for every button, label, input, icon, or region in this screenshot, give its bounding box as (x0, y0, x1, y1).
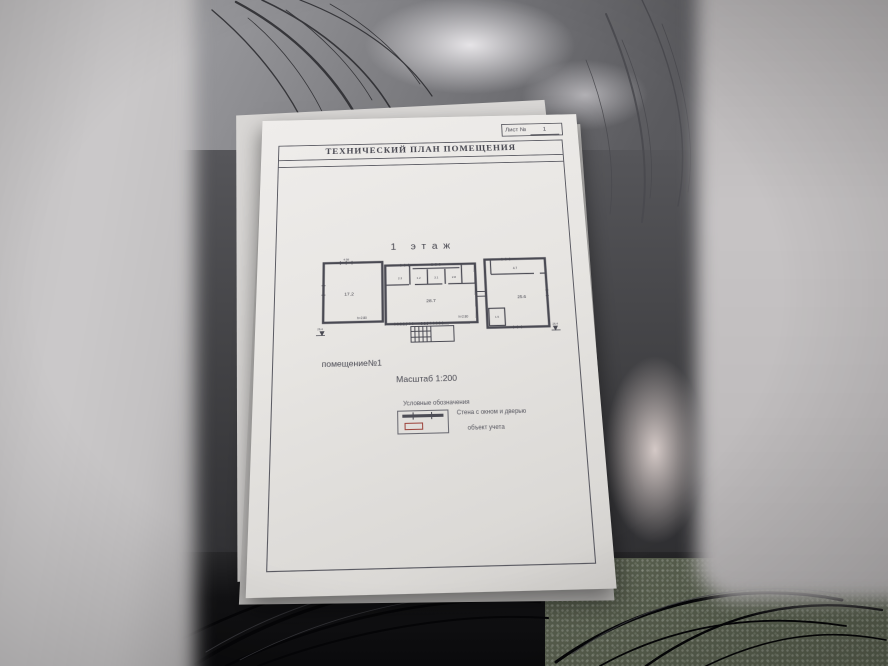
legend-item-wall-label: Стена с окном и дверью (457, 409, 527, 417)
small-room-area: 1.2 (417, 276, 422, 280)
wall-with-window-door-symbol (402, 414, 443, 418)
small-room-area: 2.8 (452, 275, 457, 279)
elevation-mark-right: 26.4 (551, 321, 561, 330)
floor-plan-drawing: 17.2 h=2.80 4.98 (316, 252, 562, 353)
left-room-height: h=2.80 (357, 316, 367, 320)
legend-header: Условные обозначения (403, 397, 571, 407)
elevation-right-value: 26.4 (552, 321, 558, 325)
porch-walls (411, 326, 454, 343)
foreground-blur-right (697, 0, 888, 600)
right-top-room-area: 4.7 (513, 266, 518, 270)
premises-label: помещение№1 (322, 358, 382, 369)
hall-area: 28.7 (426, 298, 436, 304)
sheet-number-value: 1 (530, 124, 560, 135)
legend: Условные обозначения Стена с окном и две… (397, 397, 573, 434)
left-room-area: 17.2 (344, 291, 354, 297)
document-paper: Лист № 1 ТЕХНИЧЕСКИЙ ПЛАН ПОМЕЩЕНИЯ 1 эт… (246, 114, 617, 598)
small-room-area: 3.1 (434, 275, 439, 279)
right-annex-area: 1.5 (495, 315, 500, 319)
right-room-area: 25.6 (517, 294, 527, 299)
central-window-hatch (394, 263, 443, 326)
sheet-number-box: Лист № 1 (501, 123, 563, 137)
scale-label: Масштаб 1:200 (272, 370, 580, 387)
photo-scene: Лист № 1 ТЕХНИЧЕСКИЙ ПЛАН ПОМЕЩЕНИЯ 1 эт… (0, 0, 888, 666)
connector-walls (476, 291, 486, 296)
elevation-mark-left: 26.4 (316, 327, 325, 336)
small-room-area: 2.3 (398, 276, 403, 280)
central-inner-walls (385, 264, 476, 286)
document-frame: ТЕХНИЧЕСКИЙ ПЛАН ПОМЕЩЕНИЯ 1 этаж 17.2 h… (266, 140, 596, 573)
legend-symbol-box (397, 409, 449, 434)
left-room-window-ticks (321, 261, 352, 295)
elevation-left-value: 26.4 (317, 327, 323, 331)
hall-height: h=2.80 (458, 314, 468, 318)
object-of-record-symbol (405, 422, 424, 430)
document-content: 1 этаж 17.2 h=2.80 4.98 (267, 162, 595, 571)
left-room-dimension: 4.98 (343, 258, 349, 262)
right-window-ticks (502, 257, 551, 329)
foreground-blur-left (0, 0, 195, 666)
legend-item-object-label: объект учета (468, 424, 528, 432)
sheet-number-label: Лист № (505, 127, 527, 133)
